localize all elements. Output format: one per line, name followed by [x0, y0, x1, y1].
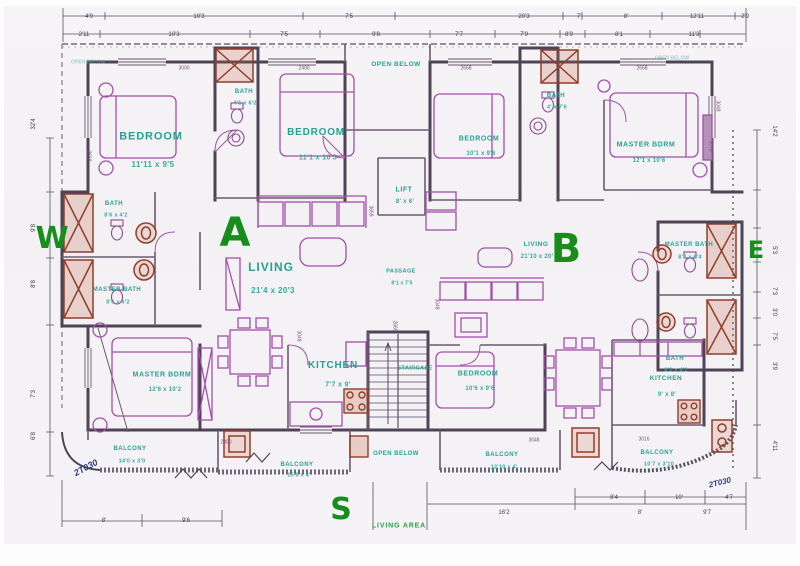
room-label-balcony-a2: BALCONY: [280, 462, 313, 468]
room-dim-bath-a: 4'1 x 6'2: [233, 101, 256, 107]
room-label-bedroom-a2: BEDROOM: [287, 128, 345, 138]
room-dim-master-bdrm-a: 12'6 x 10'2: [149, 387, 182, 393]
unit-letter-a: A: [220, 213, 251, 253]
room-label-balcony-b1: BALCONY: [485, 452, 518, 458]
labels-layer: BEDROOM11'11 x 9'5BEDROOM11'1 x 10'5BEDR…: [4, 6, 796, 544]
dim-number: 10'3: [193, 14, 204, 20]
dim-number: 7'3: [771, 287, 777, 295]
dim-number: 7'5: [345, 14, 353, 20]
dim-number: 8'9: [565, 32, 573, 38]
wall-tag: 3048: [715, 100, 720, 111]
dim-number: 7'5: [280, 32, 288, 38]
room-label-master-bath-w: MASTER BATH: [93, 287, 142, 293]
wall-tag: 2668: [392, 320, 397, 331]
room-label-bath-e: BATH: [666, 356, 684, 362]
room-label-kitchen-a: KITCHEN: [308, 361, 358, 371]
room-label-bath-b: BATH: [547, 93, 565, 99]
dim-number: 4'7: [725, 495, 733, 501]
room-label-bath-a: BATH: [235, 89, 253, 95]
compass-south: S: [330, 495, 352, 525]
dim-number: 7'5: [771, 332, 777, 340]
room-label-balcony-b2: BALCONY: [640, 450, 673, 456]
room-label-bedroom-a1: BEDROOM: [119, 132, 183, 143]
wall-tag: 3048: [528, 439, 539, 444]
wall-tag: 2400: [298, 67, 309, 72]
room-label-balcony-a1: BALCONY: [113, 446, 146, 452]
dim-number: 5'3: [771, 246, 777, 254]
scanned-drawing-photo: BEDROOM11'11 x 9'5BEDROOM11'1 x 10'5BEDR…: [4, 6, 796, 544]
room-dim-bath-b: 4' x 7'6: [547, 105, 567, 111]
room-label-master-bath-e: MASTER BATH: [665, 242, 714, 248]
room-dim-bedroom-a1: 11'11 x 9'5: [132, 161, 175, 169]
room-label-open-below-bottom: OPEN BELOW: [373, 451, 419, 457]
dim-number: 9'8: [372, 32, 380, 38]
wall-tag: 2668: [460, 67, 471, 72]
dim-number: 9'8: [31, 224, 37, 232]
room-label-open-below-top: OPEN BELOW: [371, 62, 421, 69]
dim-number: 10': [675, 495, 683, 501]
dim-number: 16'2: [498, 510, 509, 516]
dim-number: 8': [102, 518, 106, 524]
room-label-staircase: STAIRCASE: [397, 366, 432, 372]
room-label-passage: PASSAGE: [386, 269, 416, 275]
dim-number: 4'11: [771, 441, 777, 452]
unit-letter-b: B: [551, 229, 582, 269]
dim-number: 9'6: [182, 518, 190, 524]
dim-number: 12'11: [690, 14, 704, 20]
room-dim-bath-e: 8'2 x 4'2: [664, 368, 687, 374]
dim-number: 7'7: [455, 32, 463, 38]
dim-number: 20'3: [518, 14, 529, 20]
wall-tag: 3016: [638, 438, 649, 443]
wall-tag: 2668: [86, 150, 91, 161]
room-dim-passage: 8'1 x 7'5: [391, 282, 412, 287]
dim-number: 6'8: [31, 432, 37, 440]
room-label-living-b: LIVING: [524, 242, 549, 249]
room-label-bedroom-b1: BEDROOM: [459, 136, 499, 143]
room-dim-bedroom-b2: 10'6 x 9'6: [465, 386, 494, 392]
dim-number: 2'9: [741, 14, 749, 20]
room-dim-balcony-b1: 12'10 x 4': [491, 465, 518, 471]
room-dim-living-b: 21'10 x 20': [521, 254, 554, 260]
wall-tag: 3000: [178, 67, 189, 72]
room-dim-balcony-b2: 10'7 x 3'10: [644, 462, 674, 468]
floor-plan-page: BEDROOM11'11 x 9'5BEDROOM11'1 x 10'5BEDR…: [0, 0, 800, 566]
room-label-lift: LIFT: [395, 187, 412, 194]
dim-number: 8'8: [31, 280, 37, 288]
room-dim-lift: 8' x 6': [396, 199, 414, 205]
room-label-master-bdrm-a: MASTER BDRM: [133, 372, 192, 379]
dim-number: 9'7: [703, 510, 711, 516]
room-label-bedroom-b2: BEDROOM: [458, 371, 498, 378]
room-label-kitchen-b: KITCHEN: [650, 376, 683, 383]
window-tag-left: 2T030: [73, 458, 100, 478]
room-dim-master-bath-w: 8'6 x 6'2: [106, 300, 129, 306]
window-tag-right: 2T030: [708, 476, 732, 489]
room-label-bath-w: BATH: [105, 201, 123, 207]
dim-number: 11'3: [689, 32, 700, 38]
dim-number: 4'9: [85, 14, 93, 20]
room-dim-bath-w: 8'6 x 4'2: [104, 213, 127, 219]
dim-number: 8'1: [615, 32, 623, 38]
dim-number: 7'3: [31, 390, 37, 398]
room-label-master-bdrm-b: MASTER BDRM: [617, 142, 676, 149]
room-label-living-a: LIVING: [248, 261, 294, 273]
wall-tag: 3048: [434, 298, 439, 309]
room-dim-kitchen-a: 7'7 x 9': [325, 382, 351, 389]
dim-number: 2'11: [79, 32, 90, 38]
dim-number: 7'9: [520, 32, 528, 38]
wall-tag: 2668: [636, 67, 647, 72]
wall-tag: 2400: [220, 441, 231, 446]
room-dim-bedroom-b1: 10'1 x 9'6: [466, 151, 495, 157]
dim-number: 3'9: [771, 362, 777, 370]
compass-east: E: [748, 238, 764, 262]
wall-tag: 3658: [368, 205, 373, 216]
room-label-open-below-corner-left: OPEN BELOW: [71, 61, 105, 66]
dim-number: 10'3: [168, 32, 179, 38]
dim-number: 8'4: [610, 495, 618, 501]
dim-number: 8': [624, 14, 628, 20]
room-dim-master-bdrm-b: 12'1 x 10'6: [633, 158, 666, 164]
dim-number: 14'2: [771, 125, 777, 136]
room-dim-master-bath-e: 8'0 x 6'4: [678, 255, 701, 261]
dim-number: 8': [638, 510, 642, 516]
dim-number: 7': [577, 14, 581, 20]
wall-tag: 3048: [296, 330, 301, 341]
room-dim-living-a: 21'4 x 20'3: [251, 287, 295, 295]
compass-west: W: [35, 224, 68, 254]
room-dim-balcony-a2: 15'0 x 4': [287, 473, 310, 479]
room-dim-bedroom-a2: 11'1 x 10'5: [299, 155, 337, 162]
wall-tag: 3078: [708, 140, 713, 151]
dim-number: 32'4: [31, 118, 37, 129]
living-area-note: LIVING AREA: [372, 523, 426, 530]
dim-number: 3'0: [771, 308, 777, 316]
room-dim-kitchen-b: 9' x 8': [658, 392, 676, 398]
room-dim-balcony-a1: 14'0 x 3'0: [119, 459, 146, 465]
room-label-open-below-corner-right: OPEN BELOW: [655, 57, 689, 62]
